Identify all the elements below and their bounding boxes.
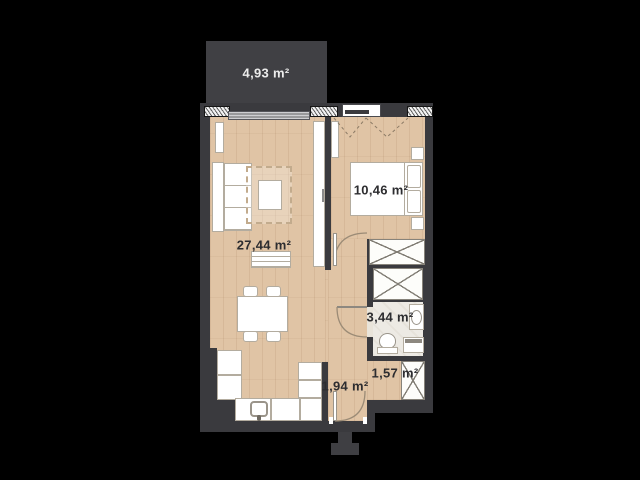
wall-cutout: [375, 413, 433, 432]
kitchen-counter-lower: [298, 380, 322, 398]
floor-plan: 4,93 m² 27,44 m² 10,46 m² 3,44 m² 1,94 m…: [0, 0, 640, 480]
kitchen-tall-cabinet: [217, 375, 242, 400]
entry-door-jamb: [363, 417, 367, 424]
area-label-bedroom: 10,46 m²: [354, 183, 408, 198]
pillow: [407, 165, 421, 188]
coffee-table: [258, 180, 282, 210]
wall-kitchen-corner: [215, 400, 235, 432]
dining-chair: [243, 331, 258, 342]
kitchen-counter-cell: [271, 398, 300, 421]
entry-steps-lower: [331, 443, 359, 455]
bedroom-door-leaf: [333, 233, 337, 266]
sofa-backrest: [212, 162, 224, 232]
balcony-door-window: [228, 111, 310, 120]
toilet-tank: [377, 347, 398, 354]
wall-hatch-right: [407, 106, 433, 117]
bedroom-wardrobe-closet: [369, 239, 425, 265]
kitchen-counter-upper: [298, 362, 322, 380]
entry-steps-upper: [338, 432, 352, 443]
area-label-balcony: 4,93 m²: [243, 66, 290, 81]
tv-console: [251, 251, 291, 268]
shaft-closet: [373, 268, 423, 300]
pillow: [407, 190, 421, 213]
kitchen-faucet: [257, 415, 261, 421]
bedroom-window-frame: [345, 110, 369, 114]
wall-hatch-left: [204, 106, 230, 117]
radiator-living: [215, 122, 224, 153]
kitchen-counter-cell: [300, 398, 322, 421]
washing-machine-panel: [405, 339, 422, 343]
area-label-living-room: 27,44 m²: [237, 238, 291, 253]
area-label-bathroom: 3,44 m²: [367, 310, 414, 325]
sliding-door-handle: [322, 189, 324, 202]
area-label-wardrobe: 1,57 m²: [372, 366, 419, 381]
wall-hatch-mid: [310, 106, 338, 117]
nightstand: [411, 147, 424, 160]
nightstand: [411, 217, 424, 230]
dining-table: [237, 296, 288, 332]
radiator-bedroom: [331, 121, 339, 158]
fridge: [217, 350, 242, 375]
area-label-hall: 1,94 m²: [322, 379, 369, 394]
dining-chair: [266, 331, 281, 342]
entry-door-leaf: [333, 391, 337, 421]
